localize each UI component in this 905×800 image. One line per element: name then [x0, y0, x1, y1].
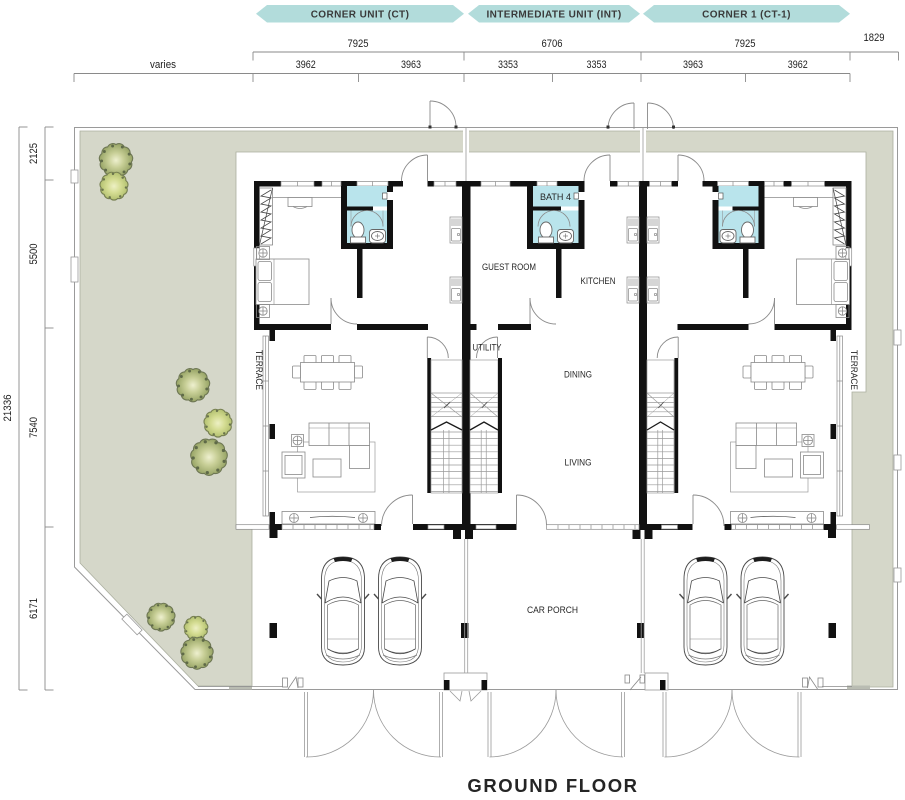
- svg-text:CAR PORCH: CAR PORCH: [527, 605, 578, 615]
- svg-text:7925: 7925: [735, 38, 756, 50]
- svg-text:3353: 3353: [587, 59, 607, 71]
- svg-text:TERRACE: TERRACE: [849, 350, 859, 390]
- svg-text:CORNER 1 (CT-1): CORNER 1 (CT-1): [702, 10, 791, 21]
- svg-text:3963: 3963: [401, 59, 421, 71]
- svg-text:INTERMEDIATE UNIT (INT): INTERMEDIATE UNIT (INT): [486, 10, 621, 21]
- svg-text:21336: 21336: [2, 395, 14, 422]
- svg-text:3963: 3963: [683, 59, 703, 71]
- svg-text:7540: 7540: [28, 417, 40, 438]
- svg-text:1829: 1829: [864, 32, 885, 44]
- svg-text:BATH 4: BATH 4: [540, 192, 571, 202]
- svg-text:varies: varies: [150, 59, 176, 71]
- svg-text:DINING: DINING: [564, 370, 592, 380]
- svg-text:CORNER UNIT (CT): CORNER UNIT (CT): [311, 10, 410, 21]
- svg-text:LIVING: LIVING: [565, 458, 592, 468]
- svg-text:KITCHEN: KITCHEN: [581, 276, 616, 286]
- svg-text:GUEST ROOM: GUEST ROOM: [482, 262, 536, 272]
- svg-text:UTILITY: UTILITY: [473, 343, 502, 353]
- svg-text:2125: 2125: [28, 143, 40, 164]
- svg-text:6706: 6706: [542, 38, 563, 50]
- svg-text:5500: 5500: [28, 244, 40, 265]
- svg-text:3962: 3962: [788, 59, 808, 71]
- svg-text:TERRACE: TERRACE: [254, 350, 264, 390]
- svg-text:3962: 3962: [296, 59, 316, 71]
- svg-text:7925: 7925: [348, 38, 369, 50]
- svg-text:GROUND FLOOR: GROUND FLOOR: [467, 775, 638, 796]
- svg-text:3353: 3353: [498, 59, 518, 71]
- svg-text:6171: 6171: [28, 598, 40, 619]
